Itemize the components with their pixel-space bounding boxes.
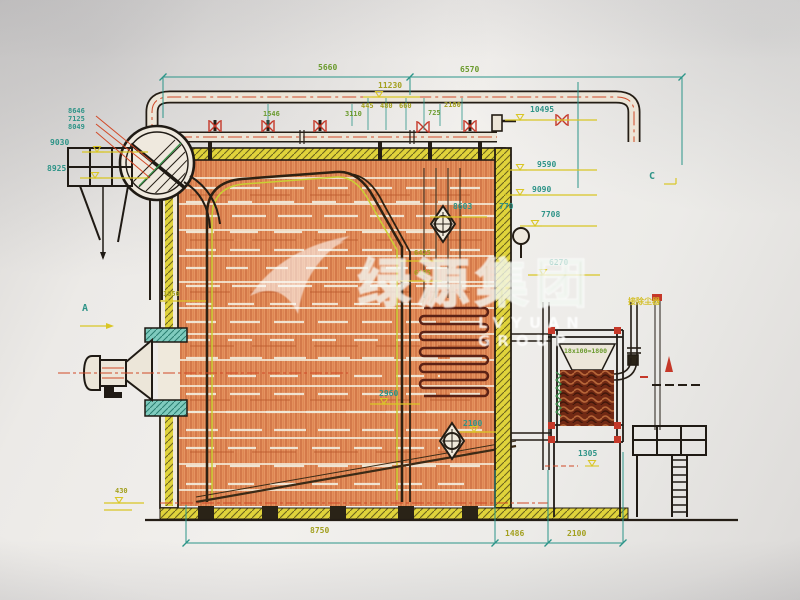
dim-3110: 3110 [345,111,362,118]
section-marker-a: A [82,304,88,314]
access-ladder [672,455,687,517]
dim-2180: 2180 [444,102,461,109]
dim-8646: 8646 [68,108,85,115]
section-cone-marker [652,356,700,385]
dim-5660: 5660 [318,64,337,72]
dim-9030: 9030 [50,139,69,147]
dim-430: 430 [115,488,128,495]
dim-7708: 7708 [541,211,560,219]
dim-7125: 7125 [68,116,85,123]
boiler-elevation-drawing [0,0,800,600]
flue-duct [511,302,551,470]
dim-8049: 8049 [68,124,85,131]
dim-9090: 9090 [532,186,551,194]
dim-11230: 11230 [378,82,402,90]
standpipe [614,294,662,430]
dim-6270: 6270 [549,259,568,267]
section-marker-c: C [649,172,655,182]
dim-1050: 1050 [163,291,180,298]
safety-valve [492,115,502,131]
dim-6105: 6105 [414,270,431,277]
photographed-boiler-drawing: 5660 6570 11230 445 480 660 2180 1546 31… [0,0,800,600]
dim-8750: 8750 [310,527,329,535]
dim-1305: 1305 [578,450,597,458]
dim-1546: 1546 [263,111,280,118]
economizer-rows-note: 18x100=1800 [564,348,607,355]
dim-8925: 8925 [47,165,66,173]
economizer-coil [560,370,614,426]
burner-foot [104,386,122,398]
dim-6425: 6425 [414,250,431,257]
flue-outlet-note: 接除尘器 [628,298,660,306]
side-valve-port [513,228,529,258]
dim-6570: 6570 [460,66,479,74]
dim-1486: 1486 [505,530,524,538]
dim-445: 445 [361,103,374,110]
dim-480: 480 [380,103,393,110]
service-platform [633,426,706,517]
dim-660: 660 [399,103,412,110]
dim-2100-mid: 2100 [463,420,482,428]
dim-9590: 9590 [537,161,556,169]
dim-10495: 10495 [530,106,554,114]
dim-725: 725 [428,110,441,117]
feed-header [178,130,497,144]
dim-2960: 2960 [379,390,398,398]
dim-2100-bottom: 2100 [567,530,586,538]
economizer [548,327,623,517]
dim-770: 770 [499,203,513,211]
dim-8603: 8603 [453,203,472,211]
